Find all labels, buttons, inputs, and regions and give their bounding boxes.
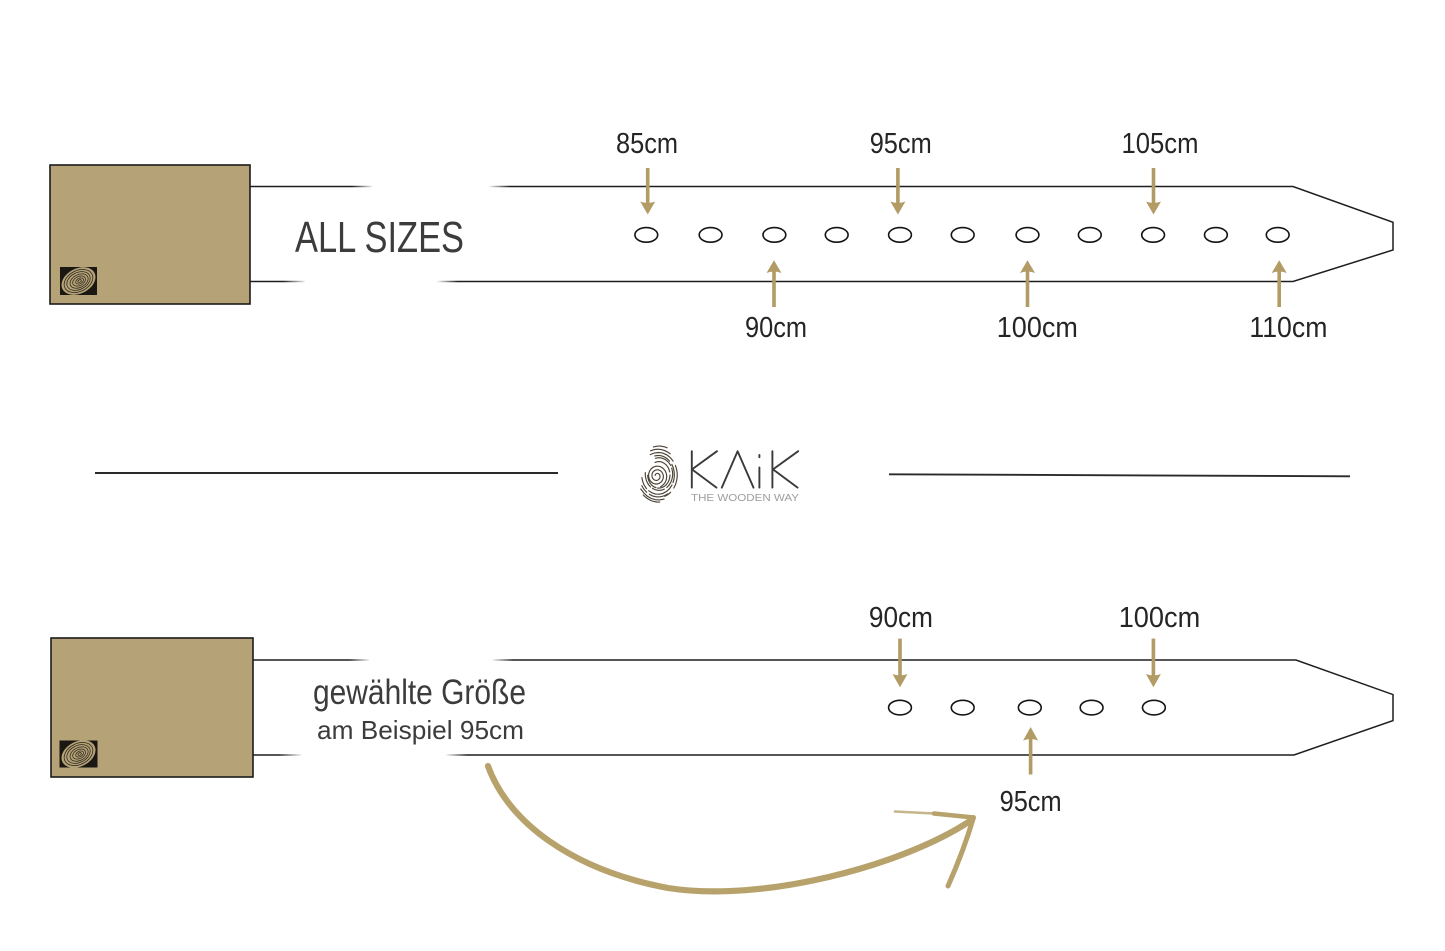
svg-text:95cm: 95cm <box>1000 786 1062 818</box>
svg-text:85cm: 85cm <box>616 128 678 160</box>
svg-text:105cm: 105cm <box>1122 128 1199 160</box>
svg-text:gewählte Größe: gewählte Größe <box>313 673 526 712</box>
svg-text:THE WOODEN WAY: THE WOODEN WAY <box>691 493 799 504</box>
svg-text:95cm: 95cm <box>870 128 932 160</box>
svg-text:90cm: 90cm <box>869 602 933 634</box>
svg-text:100cm: 100cm <box>997 312 1078 344</box>
svg-text:am Beispiel 95cm: am Beispiel 95cm <box>317 715 524 745</box>
svg-text:90cm: 90cm <box>745 312 807 344</box>
svg-text:ALL SIZES: ALL SIZES <box>295 214 464 262</box>
svg-text:110cm: 110cm <box>1249 312 1327 344</box>
svg-text:100cm: 100cm <box>1119 602 1201 634</box>
